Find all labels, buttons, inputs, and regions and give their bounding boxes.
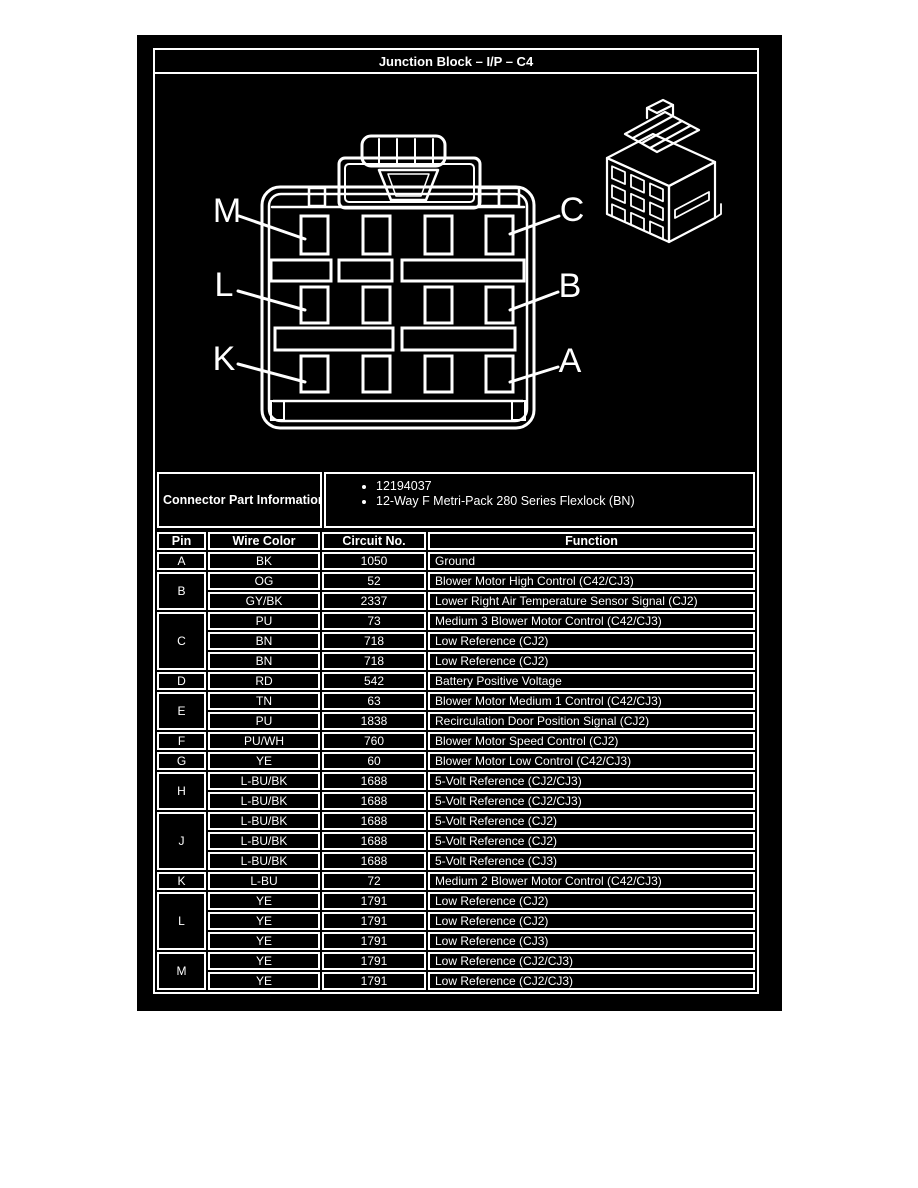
- wire-color-cell: L-BU: [208, 872, 320, 890]
- circuit-no-cell: 760: [322, 732, 426, 750]
- pin-cell: L: [157, 892, 206, 950]
- pin-cell: J: [157, 812, 206, 870]
- wire-color-cell: YE: [208, 932, 320, 950]
- table-row: L-BU/BK16885-Volt Reference (CJ2): [157, 832, 755, 850]
- function-cell: Low Reference (CJ3): [428, 932, 755, 950]
- function-cell: Blower Motor Low Control (C42/CJ3): [428, 752, 755, 770]
- wire-color-cell: BK: [208, 552, 320, 570]
- page-title: Junction Block – I/P – C4: [155, 50, 757, 74]
- circuit-no-cell: 2337: [322, 592, 426, 610]
- wire-color-cell: YE: [208, 972, 320, 990]
- function-cell: Low Reference (CJ2): [428, 632, 755, 650]
- table-row: LYE1791Low Reference (CJ2): [157, 892, 755, 910]
- function-cell: Low Reference (CJ2): [428, 892, 755, 910]
- wire-color-cell: YE: [208, 952, 320, 970]
- function-cell: 5-Volt Reference (CJ3): [428, 852, 755, 870]
- table-row: HL-BU/BK16885-Volt Reference (CJ2/CJ3): [157, 772, 755, 790]
- pin-cell: B: [157, 572, 206, 610]
- function-cell: Recirculation Door Position Signal (CJ2): [428, 712, 755, 730]
- table-row: DRD542Battery Positive Voltage: [157, 672, 755, 690]
- function-cell: Low Reference (CJ2): [428, 652, 755, 670]
- wire-color-cell: YE: [208, 892, 320, 910]
- table-row: KL-BU72Medium 2 Blower Motor Control (C4…: [157, 872, 755, 890]
- circuit-no-cell: 718: [322, 632, 426, 650]
- wire-color-cell: YE: [208, 912, 320, 930]
- connector-diagram: M L K C B A: [155, 74, 757, 470]
- function-cell: Low Reference (CJ2/CJ3): [428, 972, 755, 990]
- leader-line-l: [238, 291, 305, 310]
- wire-color-cell: GY/BK: [208, 592, 320, 610]
- function-cell: 5-Volt Reference (CJ2/CJ3): [428, 792, 755, 810]
- circuit-no-cell: 1791: [322, 952, 426, 970]
- table-row: FPU/WH760Blower Motor Speed Control (CJ2…: [157, 732, 755, 750]
- function-cell: Blower Motor High Control (C42/CJ3): [428, 572, 755, 590]
- pin-table-header-wire-color: Wire Color: [208, 532, 320, 550]
- pin-cavities: [271, 216, 525, 420]
- circuit-no-cell: 63: [322, 692, 426, 710]
- table-row: CPU73Medium 3 Blower Motor Control (C42/…: [157, 612, 755, 630]
- table-row: MYE1791Low Reference (CJ2/CJ3): [157, 952, 755, 970]
- content-frame: Junction Block – I/P – C4: [153, 48, 759, 994]
- circuit-no-cell: 1838: [322, 712, 426, 730]
- table-row: BN718Low Reference (CJ2): [157, 632, 755, 650]
- pin-cell: H: [157, 772, 206, 810]
- table-row: GYE60Blower Motor Low Control (C42/CJ3): [157, 752, 755, 770]
- circuit-no-cell: 1688: [322, 852, 426, 870]
- circuit-no-cell: 542: [322, 672, 426, 690]
- pin-label-m: M: [213, 192, 241, 230]
- table-row: GY/BK2337Lower Right Air Temperature Sen…: [157, 592, 755, 610]
- table-row: JL-BU/BK16885-Volt Reference (CJ2): [157, 812, 755, 830]
- function-cell: Medium 2 Blower Motor Control (C42/CJ3): [428, 872, 755, 890]
- circuit-no-cell: 1688: [322, 792, 426, 810]
- circuit-no-cell: 1791: [322, 892, 426, 910]
- table-row: PU1838Recirculation Door Position Signal…: [157, 712, 755, 730]
- pin-label-k: K: [213, 340, 236, 378]
- function-cell: 5-Volt Reference (CJ2): [428, 812, 755, 830]
- function-cell: Battery Positive Voltage: [428, 672, 755, 690]
- connector-isometric-icon: [607, 100, 721, 242]
- wire-color-cell: L-BU/BK: [208, 852, 320, 870]
- pin-table-header-circuit-no-: Circuit No.: [322, 532, 426, 550]
- circuit-no-cell: 60: [322, 752, 426, 770]
- table-row: L-BU/BK16885-Volt Reference (CJ3): [157, 852, 755, 870]
- pin-cell: D: [157, 672, 206, 690]
- leader-line-m: [239, 216, 305, 239]
- function-cell: 5-Volt Reference (CJ2/CJ3): [428, 772, 755, 790]
- function-cell: Lower Right Air Temperature Sensor Signa…: [428, 592, 755, 610]
- function-cell: Blower Motor Medium 1 Control (C42/CJ3): [428, 692, 755, 710]
- wire-color-cell: L-BU/BK: [208, 792, 320, 810]
- function-cell: Ground: [428, 552, 755, 570]
- pin-table-header-row: PinWire ColorCircuit No.Function: [157, 532, 755, 550]
- circuit-no-cell: 73: [322, 612, 426, 630]
- circuit-no-cell: 1688: [322, 812, 426, 830]
- function-cell: Medium 3 Blower Motor Control (C42/CJ3): [428, 612, 755, 630]
- table-row: YE1791Low Reference (CJ3): [157, 932, 755, 950]
- circuit-no-cell: 1050: [322, 552, 426, 570]
- table-row: ABK1050Ground: [157, 552, 755, 570]
- circuit-no-cell: 718: [322, 652, 426, 670]
- pin-label-l: L: [215, 266, 234, 304]
- connector-face-drawing: M L K C B A: [155, 74, 757, 470]
- connector-description: 12-Way F Metri-Pack 280 Series Flexlock …: [376, 494, 753, 508]
- table-row: L-BU/BK16885-Volt Reference (CJ2/CJ3): [157, 792, 755, 810]
- wire-color-cell: BN: [208, 632, 320, 650]
- table-row: YE1791Low Reference (CJ2/CJ3): [157, 972, 755, 990]
- connector-part-number: 12194037: [376, 479, 753, 493]
- pin-cell: E: [157, 692, 206, 730]
- table-row: ETN63Blower Motor Medium 1 Control (C42/…: [157, 692, 755, 710]
- circuit-no-cell: 1688: [322, 772, 426, 790]
- circuit-no-cell: 1688: [322, 832, 426, 850]
- wire-color-cell: PU: [208, 712, 320, 730]
- pin-table: PinWire ColorCircuit No.Function ABK1050…: [155, 530, 757, 992]
- wire-color-cell: TN: [208, 692, 320, 710]
- pin-table-header-function: Function: [428, 532, 755, 550]
- circuit-no-cell: 1791: [322, 912, 426, 930]
- wire-color-cell: PU/WH: [208, 732, 320, 750]
- function-cell: 5-Volt Reference (CJ2): [428, 832, 755, 850]
- table-row: YE1791Low Reference (CJ2): [157, 912, 755, 930]
- function-cell: Low Reference (CJ2): [428, 912, 755, 930]
- connector-part-info: Connector Part Information 12194037 12-W…: [155, 470, 757, 530]
- wire-color-cell: L-BU/BK: [208, 772, 320, 790]
- connector-part-info-values: 12194037 12-Way F Metri-Pack 280 Series …: [324, 472, 755, 528]
- pin-cell: K: [157, 872, 206, 890]
- table-row: BN718Low Reference (CJ2): [157, 652, 755, 670]
- pin-cell: A: [157, 552, 206, 570]
- pin-cell: M: [157, 952, 206, 990]
- wire-color-cell: PU: [208, 612, 320, 630]
- circuit-no-cell: 1791: [322, 932, 426, 950]
- pin-label-c: C: [560, 191, 585, 229]
- circuit-no-cell: 1791: [322, 972, 426, 990]
- junction-block-panel: Junction Block – I/P – C4: [137, 35, 782, 1011]
- pin-cell: C: [157, 612, 206, 670]
- pin-label-b: B: [559, 267, 582, 305]
- wire-color-cell: L-BU/BK: [208, 812, 320, 830]
- wire-color-cell: OG: [208, 572, 320, 590]
- pin-table-header-pin: Pin: [157, 532, 206, 550]
- pin-cell: G: [157, 752, 206, 770]
- wire-color-cell: RD: [208, 672, 320, 690]
- pin-cell: F: [157, 732, 206, 750]
- circuit-no-cell: 72: [322, 872, 426, 890]
- connector-part-info-row: Connector Part Information 12194037 12-W…: [157, 472, 755, 528]
- wire-color-cell: YE: [208, 752, 320, 770]
- connector-part-info-list: 12194037 12-Way F Metri-Pack 280 Series …: [326, 479, 753, 508]
- leader-line-k: [238, 364, 305, 382]
- table-row: BOG52Blower Motor High Control (C42/CJ3): [157, 572, 755, 590]
- wire-color-cell: BN: [208, 652, 320, 670]
- function-cell: Blower Motor Speed Control (CJ2): [428, 732, 755, 750]
- pin-label-a: A: [559, 342, 582, 380]
- connector-part-info-label: Connector Part Information: [157, 472, 322, 528]
- circuit-no-cell: 52: [322, 572, 426, 590]
- wire-color-cell: L-BU/BK: [208, 832, 320, 850]
- function-cell: Low Reference (CJ2/CJ3): [428, 952, 755, 970]
